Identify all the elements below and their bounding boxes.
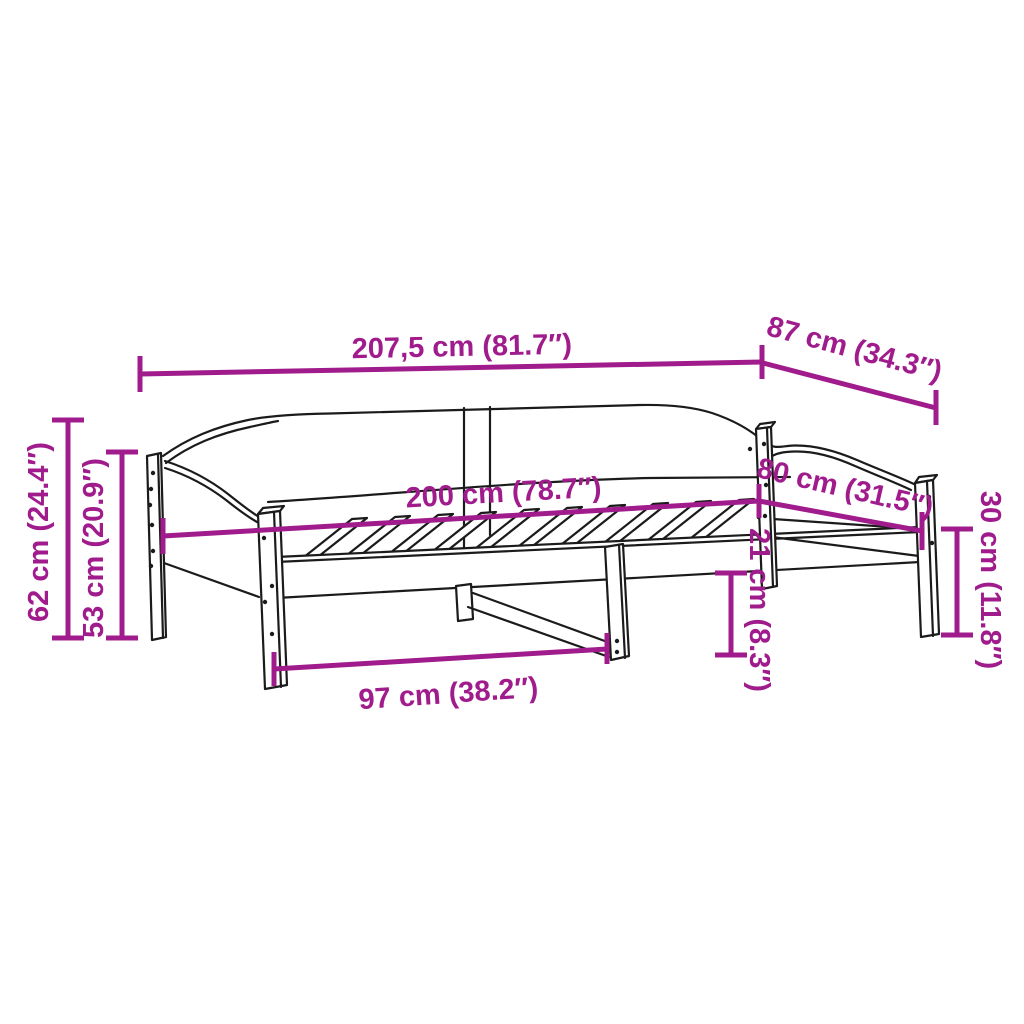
dimension-label-overall-height: 62 cm (24.4″) [23, 442, 55, 622]
dimension-line [274, 649, 607, 669]
screw-hole [149, 564, 153, 568]
screw-hole [151, 471, 155, 475]
dimension-overall-height: 62 cm (24.4″) [23, 420, 84, 638]
screw-hole [748, 447, 752, 451]
screw-hole [270, 632, 274, 636]
screw-hole [762, 442, 766, 446]
screw-hole [930, 541, 934, 545]
screw-hole [262, 536, 266, 540]
dimension-label-overall-depth: 87 cm (34.3″) [763, 311, 945, 388]
screw-hole [615, 650, 619, 654]
screw-hole [148, 503, 152, 507]
left-panel-bottom-edge [164, 563, 259, 597]
dimension-leg-height: 30 cm (11.8″) [941, 491, 1006, 669]
dimension-label-leg-height: 30 cm (11.8″) [974, 491, 1006, 669]
diagonal-brace-top-edge [473, 593, 613, 644]
dimension-label-support-span: 97 cm (38.2″) [358, 672, 540, 716]
dimension-annotations: 207,5 cm (81.7″) 87 cm (34.3″) 62 cm (24… [23, 311, 1006, 717]
dimension-line [140, 362, 762, 374]
dimension-side-panel-height: 53 cm (20.9″) [78, 452, 138, 638]
screw-hole [615, 639, 619, 643]
dimension-label-under-bed-clearance: 21 cm (8.3″) [743, 528, 775, 692]
dimension-overall-depth: 87 cm (34.3″) [763, 311, 945, 425]
dimension-label-sleeping-width: 80 cm (31.5″) [754, 452, 937, 524]
dimension-support-span: 97 cm (38.2″) [274, 633, 607, 716]
screw-hole [151, 549, 155, 553]
diagram-canvas: 207,5 cm (81.7″) 87 cm (34.3″) 62 cm (24… [0, 0, 1024, 1024]
screw-hole [270, 584, 274, 588]
bed-frame-drawing [147, 405, 939, 689]
screw-hole [263, 600, 267, 604]
screw-hole [763, 514, 767, 518]
left-panel-top-curve-inner [165, 468, 257, 522]
dimension-label-overall-length: 207,5 cm (81.7″) [351, 329, 572, 366]
screw-hole [150, 523, 154, 527]
dimension-overall-length: 207,5 cm (81.7″) [140, 329, 762, 392]
screw-hole [149, 487, 153, 491]
dimension-label-side-panel-height: 53 cm (20.9″) [78, 458, 110, 638]
support-bracket [456, 584, 473, 621]
daybed-dimension-diagram: 207,5 cm (81.7″) 87 cm (34.3″) 62 cm (24… [0, 0, 1024, 1024]
